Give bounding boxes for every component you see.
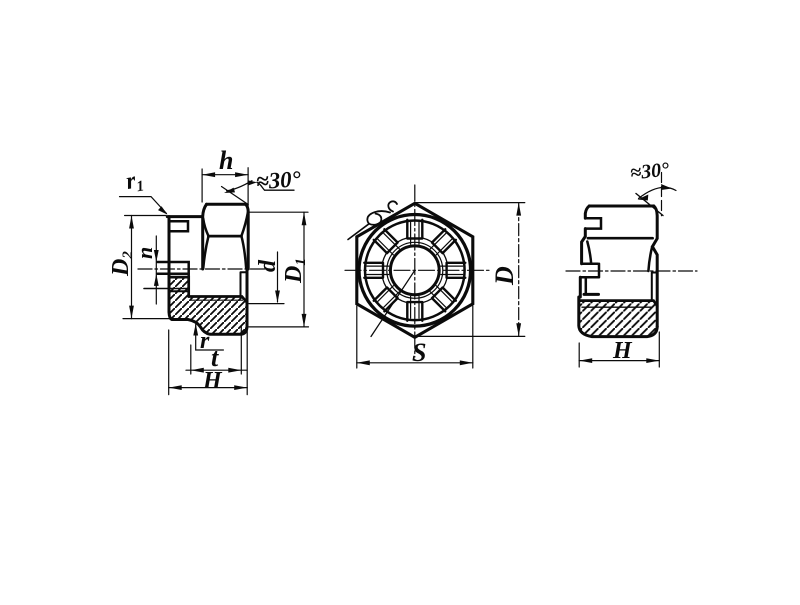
svg-text:h: h — [219, 146, 233, 175]
svg-text:D: D — [490, 266, 519, 286]
svg-text:n: n — [132, 247, 157, 259]
svg-text:S: S — [412, 338, 426, 367]
svg-text:H: H — [612, 338, 633, 364]
svg-text:≈30°: ≈30° — [255, 166, 302, 194]
svg-text:H: H — [202, 368, 223, 394]
svg-text:r: r — [200, 328, 210, 354]
svg-text:d: d — [255, 259, 281, 272]
svg-text:≈30°: ≈30° — [629, 159, 670, 185]
